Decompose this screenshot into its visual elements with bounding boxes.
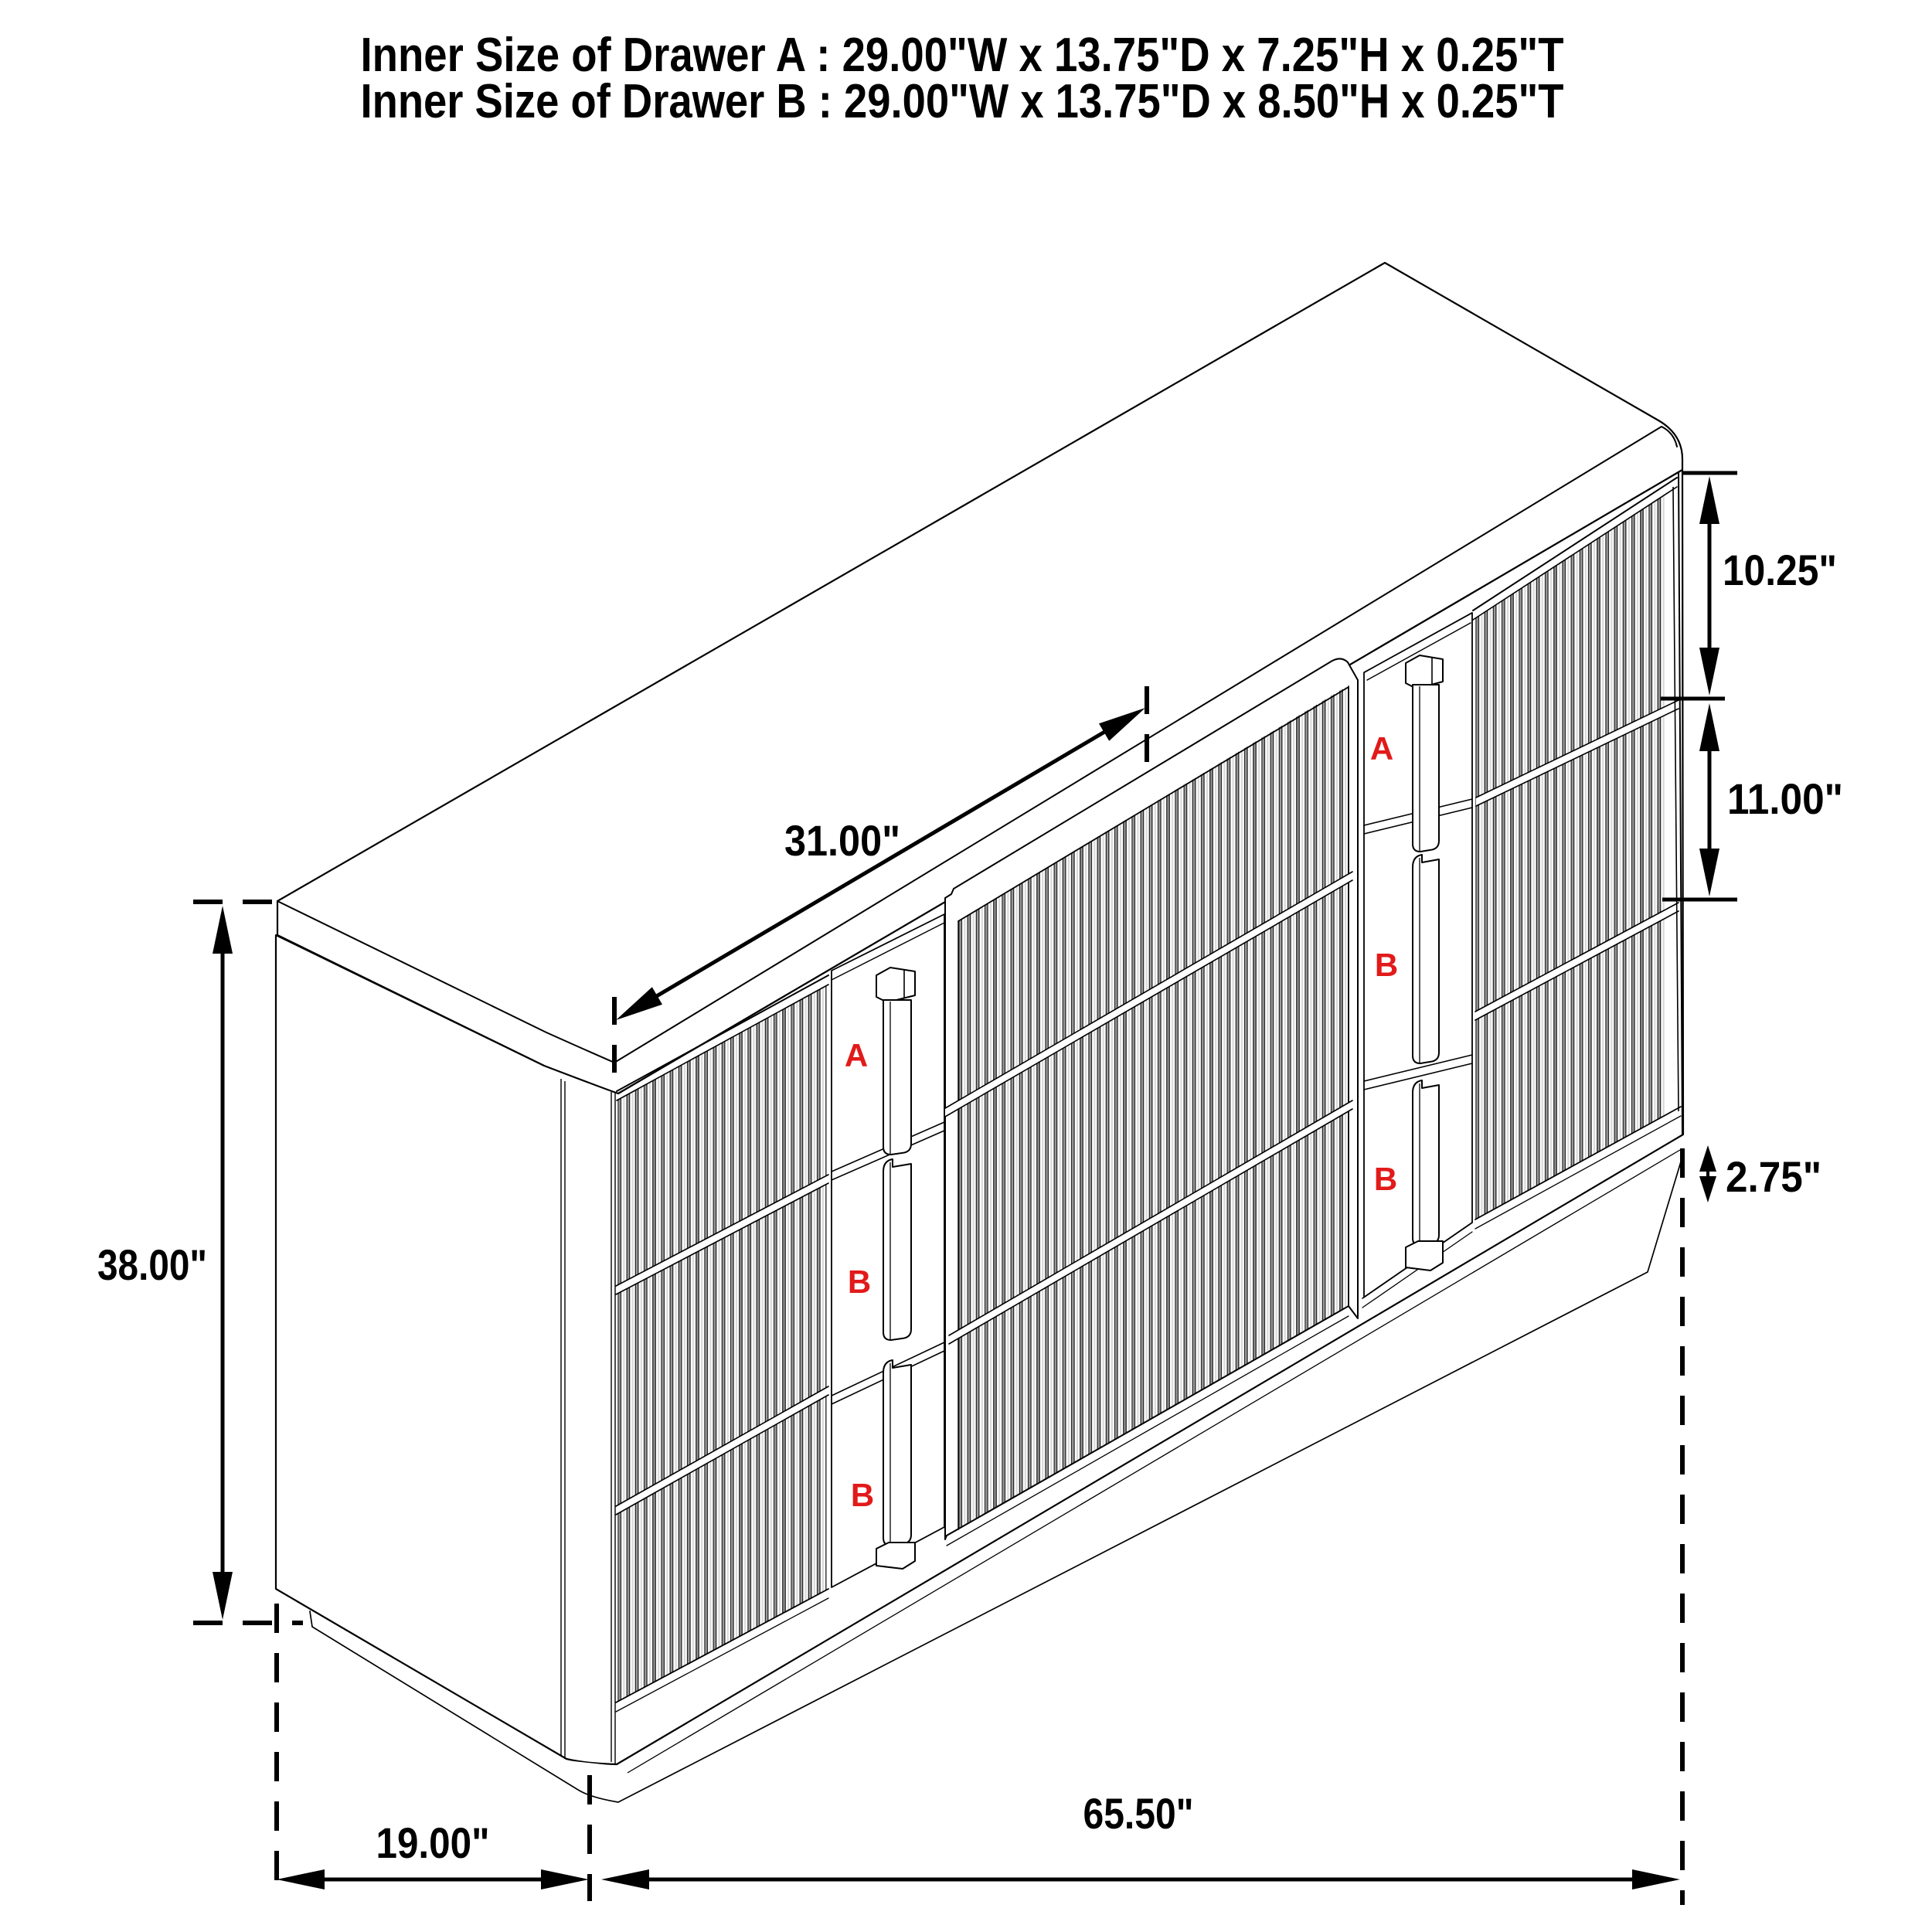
svg-text:B: B [1374,1161,1397,1197]
svg-text:2.75": 2.75" [1726,1152,1821,1201]
svg-text:Inner Size of Drawer A : 29.00: Inner Size of Drawer A : 29.00"W x 13.75… [361,29,1564,82]
svg-text:19.00": 19.00" [376,1818,490,1867]
svg-text:B: B [848,1264,871,1300]
svg-text:65.50": 65.50" [1083,1789,1194,1838]
svg-text:A: A [845,1037,868,1073]
svg-text:B: B [851,1477,874,1513]
svg-text:Inner Size of Drawer B : 29.00: Inner Size of Drawer B : 29.00"W x 13.75… [361,75,1564,128]
svg-text:38.00": 38.00" [97,1240,207,1289]
svg-text:B: B [1375,947,1398,983]
svg-text:11.00": 11.00" [1727,774,1843,823]
svg-text:A: A [1370,730,1393,767]
svg-text:10.25": 10.25" [1723,546,1837,594]
svg-text:31.00": 31.00" [784,816,900,865]
